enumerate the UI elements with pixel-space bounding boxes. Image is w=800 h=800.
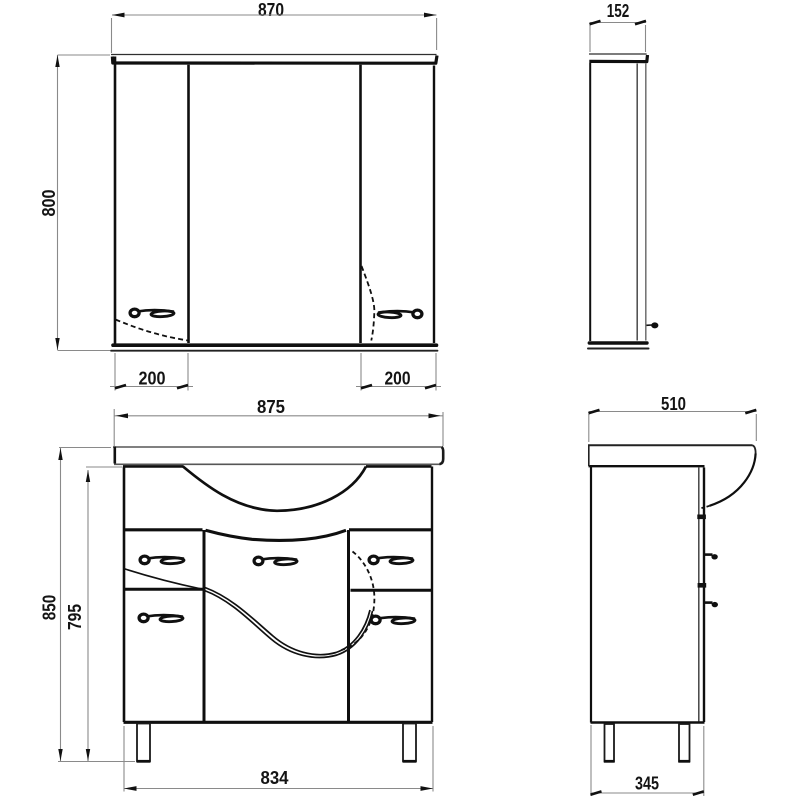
svg-text:200: 200 <box>385 369 411 389</box>
svg-text:795: 795 <box>65 604 85 630</box>
svg-text:800: 800 <box>39 190 59 217</box>
svg-text:834: 834 <box>261 768 289 788</box>
svg-text:152: 152 <box>607 1 630 21</box>
svg-text:875: 875 <box>257 397 285 417</box>
svg-text:870: 870 <box>258 0 284 20</box>
svg-text:345: 345 <box>635 774 659 794</box>
svg-text:200: 200 <box>139 369 166 389</box>
svg-text:850: 850 <box>40 595 60 621</box>
